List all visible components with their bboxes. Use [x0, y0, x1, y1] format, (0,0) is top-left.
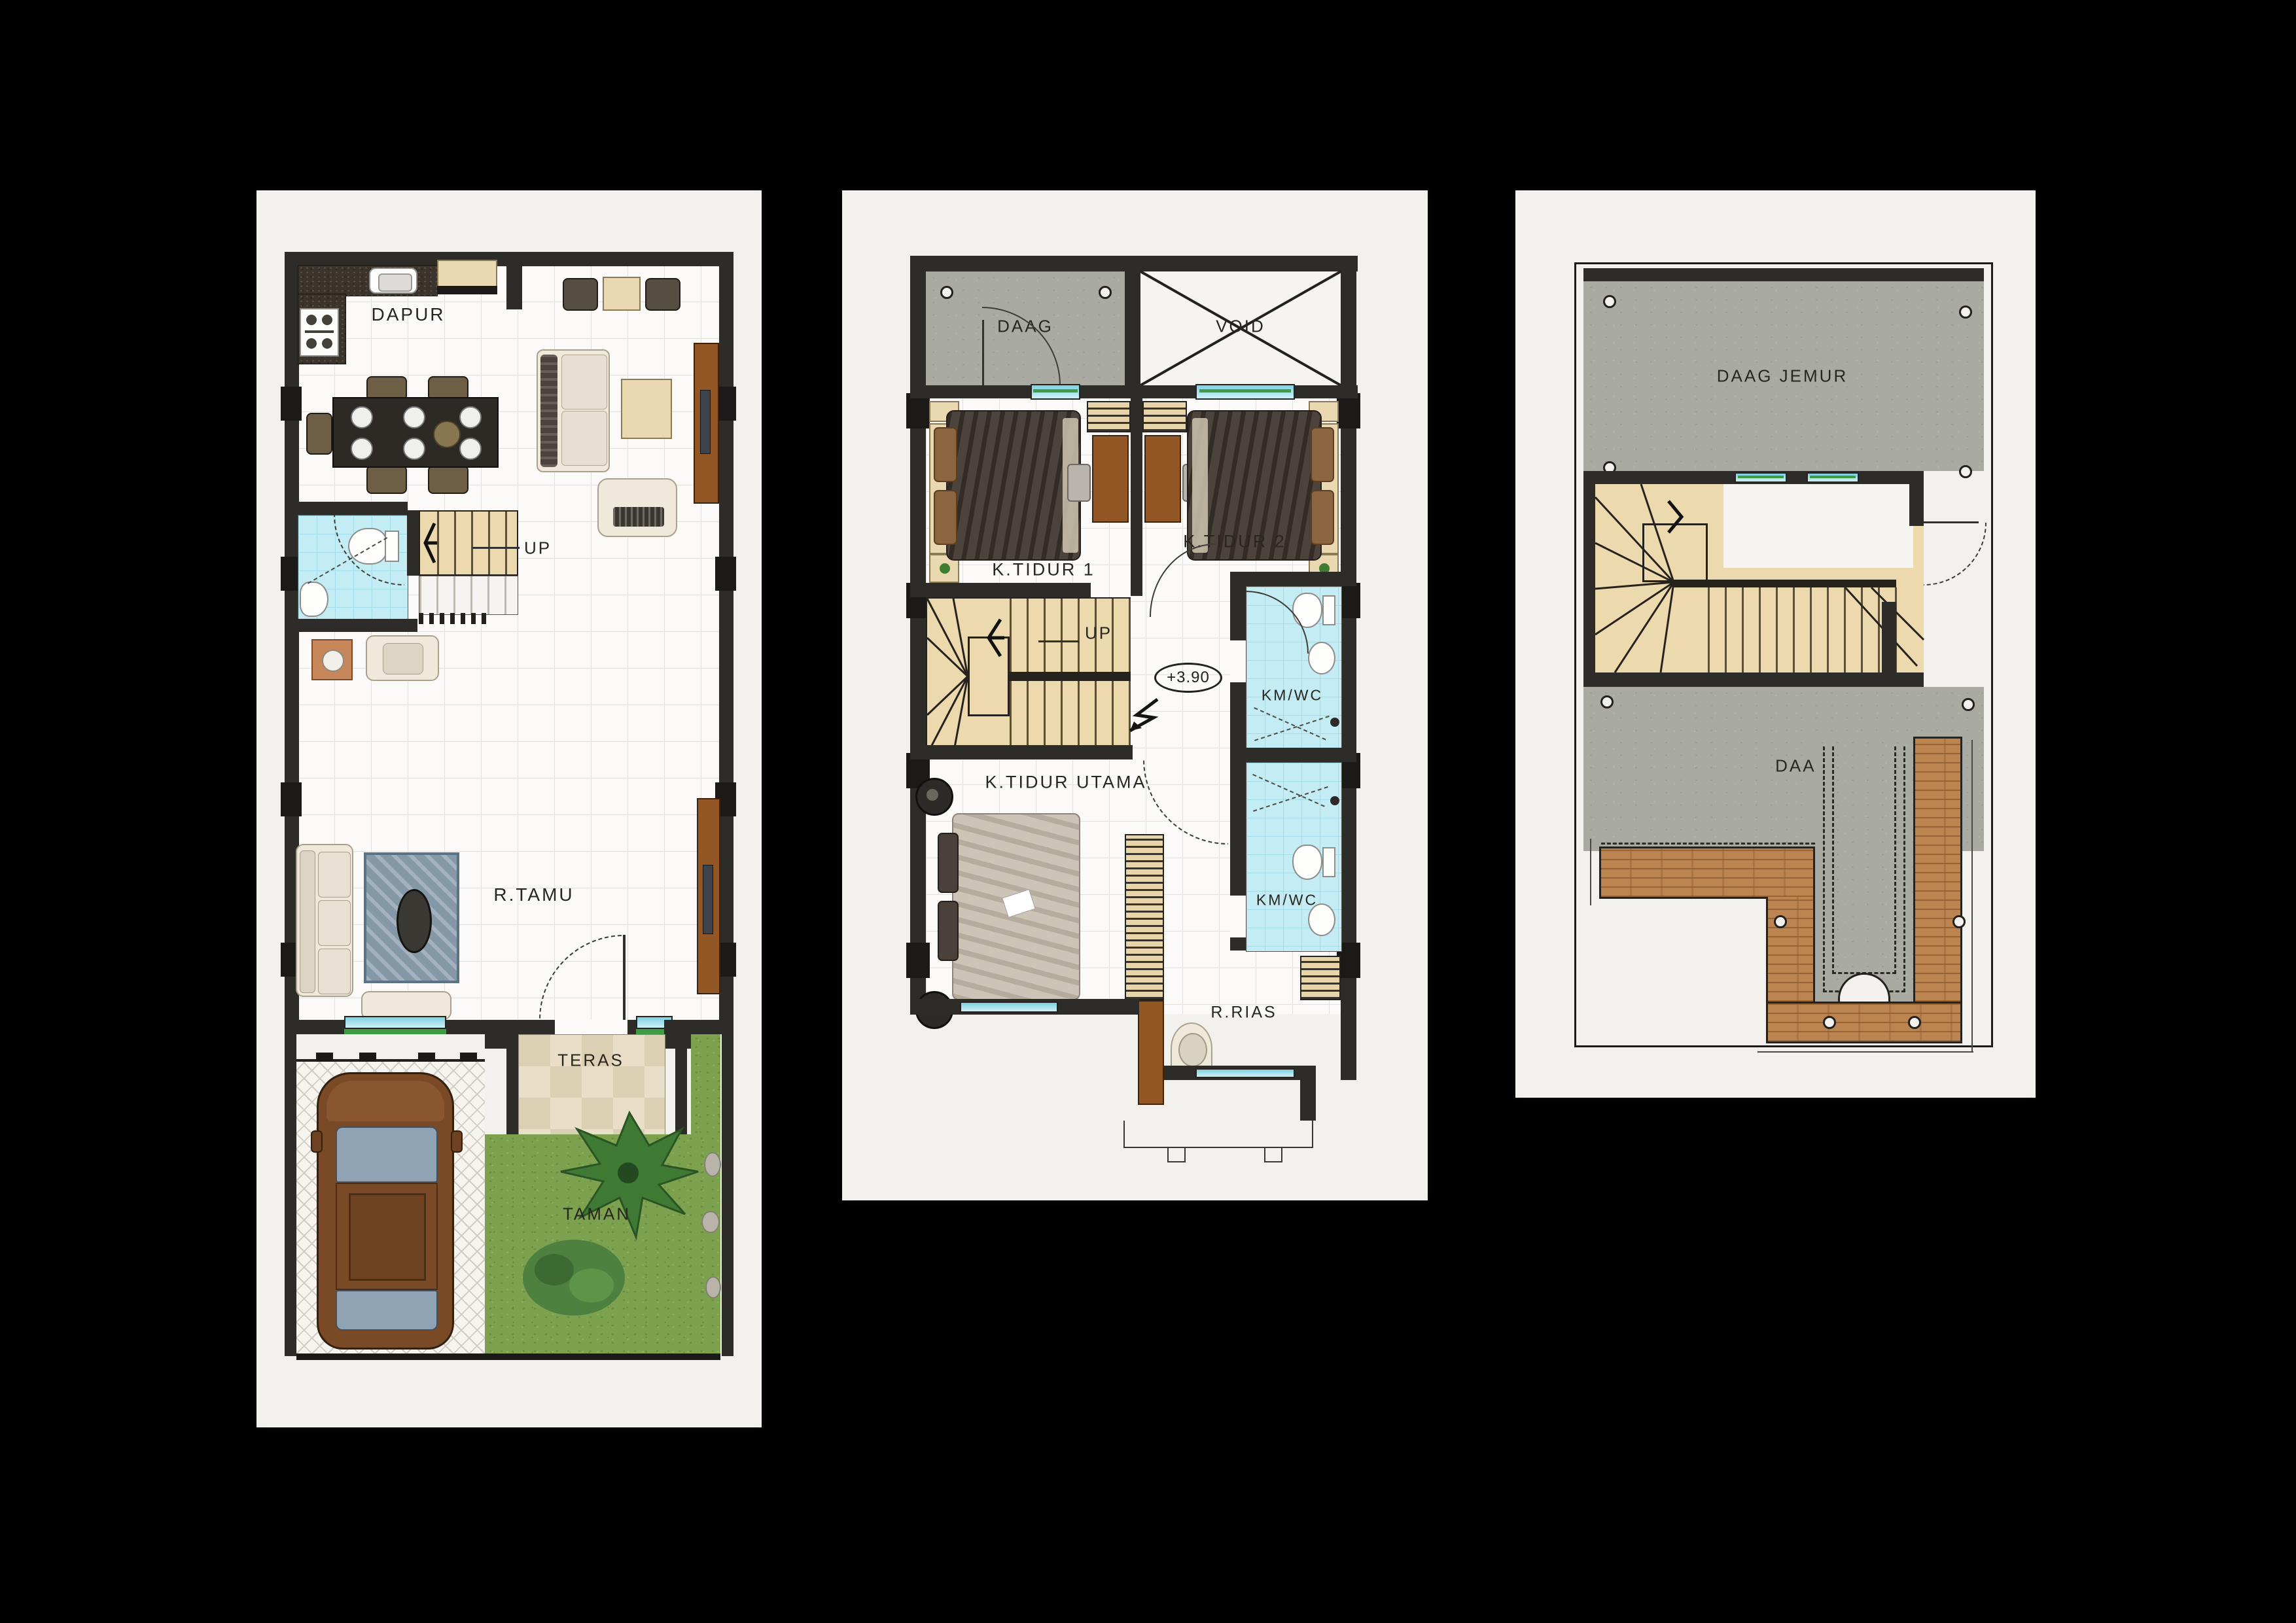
stairs-up-flight	[419, 510, 518, 576]
anchor-marker	[1600, 695, 1614, 708]
teras-post-left	[485, 1020, 518, 1049]
sink	[1308, 642, 1335, 674]
master-bed	[952, 813, 1080, 1000]
dining-chair	[428, 465, 468, 494]
stair-wall	[407, 510, 419, 576]
anchor-marker	[1823, 1016, 1836, 1029]
pillow	[934, 427, 957, 482]
label-void: VOID	[1216, 317, 1265, 337]
window-sill	[1738, 476, 1784, 478]
column	[281, 387, 302, 421]
teras-post-right	[664, 1020, 693, 1049]
kmwc-door-arc	[1246, 591, 1309, 654]
side-table	[603, 277, 641, 311]
panel-upper-floor: DAAG VOID K.TIDUR 1	[842, 190, 1428, 1200]
bath-door-arc	[334, 515, 404, 585]
roof-eave-dashed	[1601, 843, 1815, 845]
window-sill	[1199, 389, 1291, 393]
window-sill	[1810, 476, 1856, 478]
label-up-2: UP	[1085, 623, 1112, 644]
car	[317, 1072, 454, 1350]
bed-1	[946, 410, 1081, 561]
desk-chair	[1067, 464, 1091, 502]
wall-bedroom1-bottom	[910, 583, 1091, 597]
roof-outline-left	[1590, 839, 1591, 905]
dining-table	[332, 397, 499, 468]
panel-roof-plan: DAAG JEMUR	[1515, 190, 2036, 1098]
shower-head	[1330, 718, 1339, 727]
label-teras: TERAS	[557, 1051, 624, 1071]
pillow	[938, 901, 959, 961]
sofa	[537, 349, 610, 472]
kitchen-upper-cabinet	[437, 260, 497, 287]
bath-door-gap	[1230, 896, 1246, 937]
rias-shelf	[1300, 956, 1341, 1000]
roof-outline-right	[1971, 740, 1973, 1051]
pillow	[938, 833, 959, 893]
stairs-lower	[419, 576, 518, 615]
dresser-cabinet	[1138, 1000, 1164, 1105]
living-sofa	[296, 844, 353, 997]
stove	[300, 308, 339, 357]
up-leader-line	[472, 547, 520, 549]
garden-stone	[704, 1152, 721, 1177]
wall-top-center	[1125, 256, 1140, 398]
accent-chair	[645, 278, 680, 311]
wall-bedroom-divider	[1131, 398, 1142, 596]
stair-wall-bottom	[1583, 672, 1924, 687]
kitchen-sink	[369, 268, 417, 294]
bath-wall-top	[296, 502, 408, 515]
anchor-marker	[1603, 295, 1616, 308]
panel-ground-floor: DAPUR	[256, 190, 762, 1427]
balcony-outline	[1123, 1121, 1313, 1148]
balcony-notch	[1264, 1148, 1282, 1162]
bath-door-gap	[1230, 640, 1246, 682]
roof-tile-leg-right	[1913, 737, 1962, 1003]
wall-left	[910, 256, 926, 1015]
anchor-marker	[1952, 915, 1966, 928]
pillow	[934, 490, 957, 545]
pillow	[1311, 490, 1334, 545]
kitchen-cabinet-shadow	[437, 286, 497, 294]
label-up-1: UP	[524, 538, 552, 559]
toilet-tank	[1322, 847, 1335, 877]
front-door-arc	[539, 935, 624, 1020]
garden-stone	[701, 1211, 720, 1233]
armchair	[597, 478, 677, 537]
front-window-left	[344, 1016, 446, 1029]
roof-tile-leg-left	[1766, 897, 1815, 1003]
anchor-marker	[1774, 915, 1787, 928]
tv-console	[694, 343, 719, 504]
column	[906, 393, 930, 428]
window	[1195, 1068, 1295, 1078]
roof-tile-band-bottom	[1766, 1002, 1962, 1043]
bedroom2-door-arc	[1150, 544, 1215, 617]
teras-wall-left	[506, 1049, 518, 1134]
anchor-marker	[1959, 465, 1972, 478]
wall-bath-divider	[1246, 748, 1356, 762]
dining-chair	[366, 465, 407, 494]
speaker	[915, 778, 953, 816]
desk	[1092, 435, 1129, 523]
rug	[364, 852, 459, 983]
desk-shelf	[1142, 401, 1187, 432]
anchor-marker	[940, 286, 953, 299]
wall-balcony-side	[1300, 1080, 1316, 1121]
column	[281, 782, 302, 816]
label-kmwc-lower: KM/WC	[1256, 892, 1318, 909]
toilet-tank	[1322, 595, 1335, 625]
label-k-tidur-1: K.TIDUR 1	[992, 560, 1095, 580]
bath-wall-bottom	[296, 619, 417, 632]
wall-master-top	[910, 745, 1133, 759]
wardrobe	[1125, 834, 1164, 1000]
boundary-right	[722, 1034, 733, 1356]
pillow	[1311, 427, 1334, 482]
front-door-gap	[555, 1020, 627, 1034]
boundary-left	[285, 1034, 296, 1356]
garden-stone	[705, 1276, 721, 1299]
master-door-arc	[1143, 759, 1228, 845]
label-kmwc-upper: KM/WC	[1262, 687, 1323, 705]
lamp-table	[311, 639, 353, 680]
tv-console-2	[697, 798, 720, 994]
stairs-roof	[1583, 484, 1924, 672]
stairs-hatch	[419, 613, 491, 624]
elevation-value: +3.90	[1167, 669, 1210, 687]
notch-dashed-outline-inner	[1832, 746, 1896, 974]
daag-door-arc	[982, 307, 1061, 385]
desk	[1144, 435, 1181, 523]
label-r-tamu: R.TAMU	[493, 884, 574, 905]
anchor-marker	[1099, 286, 1112, 299]
dining-chair	[306, 413, 332, 455]
bush	[518, 1232, 629, 1323]
front-window-sill	[344, 1029, 446, 1034]
column	[1337, 393, 1360, 428]
roof-door-arc	[1924, 523, 1987, 585]
bath-sink	[300, 582, 328, 617]
stairs-upper	[926, 597, 1131, 753]
living-armchair	[366, 635, 439, 681]
up-leader-line	[1038, 640, 1079, 642]
column	[715, 557, 736, 591]
label-k-tidur-utama: K.TIDUR UTAMA	[985, 773, 1147, 793]
elevation-marker: +3.90	[1154, 663, 1222, 693]
column	[906, 943, 930, 978]
shower-head	[1330, 796, 1339, 805]
carport-gate-edge	[296, 1034, 485, 1062]
label-taman: TAMAN	[563, 1204, 631, 1225]
turun-arrow	[1125, 695, 1164, 735]
accent-chair	[563, 278, 598, 311]
window-sill	[1033, 389, 1078, 393]
desk-shelf	[1087, 401, 1131, 432]
wall-right	[719, 252, 733, 1034]
roof-outline-bottom	[1757, 1051, 1973, 1053]
anchor-marker	[1908, 1016, 1921, 1029]
floorplan-sheet: DAPUR	[0, 0, 2296, 1623]
wall-bath-top	[1230, 572, 1356, 586]
anchor-marker	[1959, 305, 1972, 319]
roof-wall-top	[1583, 268, 1984, 281]
label-daag-jemur: DAAG JEMUR	[1717, 366, 1848, 387]
boundary-bottom	[296, 1353, 720, 1360]
coffee-table	[621, 379, 672, 439]
window	[960, 1002, 1058, 1013]
balcony-notch	[1167, 1148, 1186, 1162]
anchor-marker	[1962, 698, 1975, 711]
wall-stub-kitchen	[506, 252, 522, 309]
roof-tile-band-left	[1599, 846, 1815, 899]
label-dapur: DAPUR	[371, 304, 445, 325]
toilet	[1292, 845, 1322, 880]
label-r-rias: R.RIAS	[1210, 1003, 1277, 1022]
